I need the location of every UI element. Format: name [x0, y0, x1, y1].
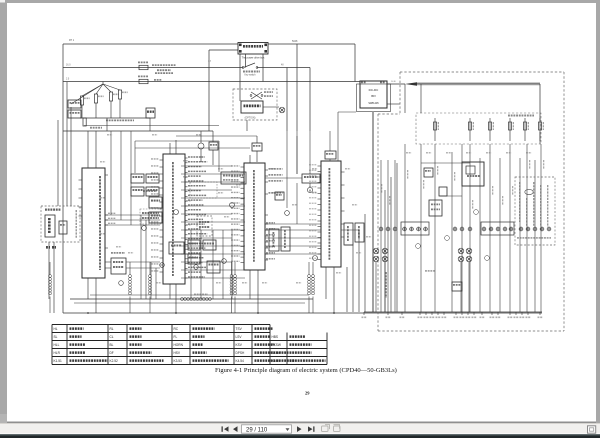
svg-text:TSV: TSV	[236, 327, 243, 331]
svg-text:Figure 4-1 Principle diagram o: Figure 4-1 Principle diagram of electric…	[215, 367, 397, 374]
svg-text:K1.51: K1.51	[54, 359, 63, 363]
svg-text:CL: CL	[110, 335, 114, 339]
svg-text:K4.54: K4.54	[236, 359, 245, 363]
svg-text:K2.52: K2.52	[110, 359, 119, 363]
svg-text:RT 1: RT 1	[69, 39, 75, 42]
svg-text:K3.53: K3.53	[174, 359, 183, 363]
svg-text:16 B: 16 B	[391, 81, 396, 83]
svg-text:HLL: HLL	[54, 343, 60, 347]
svg-text:K5.55: K5.55	[272, 359, 281, 363]
svg-text:HLR: HLR	[54, 351, 61, 355]
svg-text:80V: 80V	[371, 94, 376, 98]
svg-text:HL: HL	[54, 327, 58, 331]
svg-text:(OPTION): (OPTION)	[245, 117, 256, 120]
svg-text:LSV: LSV	[236, 335, 243, 339]
svg-text:Key switch: Key switch	[245, 74, 257, 77]
svg-text:HORN: HORN	[174, 343, 184, 347]
svg-text:29: 29	[305, 391, 310, 396]
svg-text:HBS: HBS	[272, 335, 279, 339]
svg-text:FL: FL	[174, 335, 178, 339]
svg-text:KSV: KSV	[236, 343, 243, 347]
svg-text:DC-DC: DC-DC	[369, 88, 379, 92]
svg-text:RC: RC	[174, 327, 179, 331]
svg-text:5048: 5048	[292, 40, 298, 43]
svg-text:29 / 110: 29 / 110	[246, 427, 268, 433]
svg-text:16.0: 16.0	[66, 65, 71, 67]
svg-text:BL: BL	[110, 343, 114, 347]
svg-text:HSV: HSV	[174, 351, 181, 355]
svg-text:PKSW: PKSW	[272, 343, 281, 347]
svg-text:DPSH: DPSH	[236, 351, 246, 355]
svg-text:The power drive box: The power drive box	[242, 57, 265, 60]
svg-text:RL: RL	[110, 327, 114, 331]
svg-text:SWB-245: SWB-245	[368, 102, 379, 105]
svg-text:SL: SL	[54, 335, 58, 339]
svg-text:SKSW: SKSW	[272, 351, 281, 355]
svg-text:DF: DF	[110, 351, 114, 355]
